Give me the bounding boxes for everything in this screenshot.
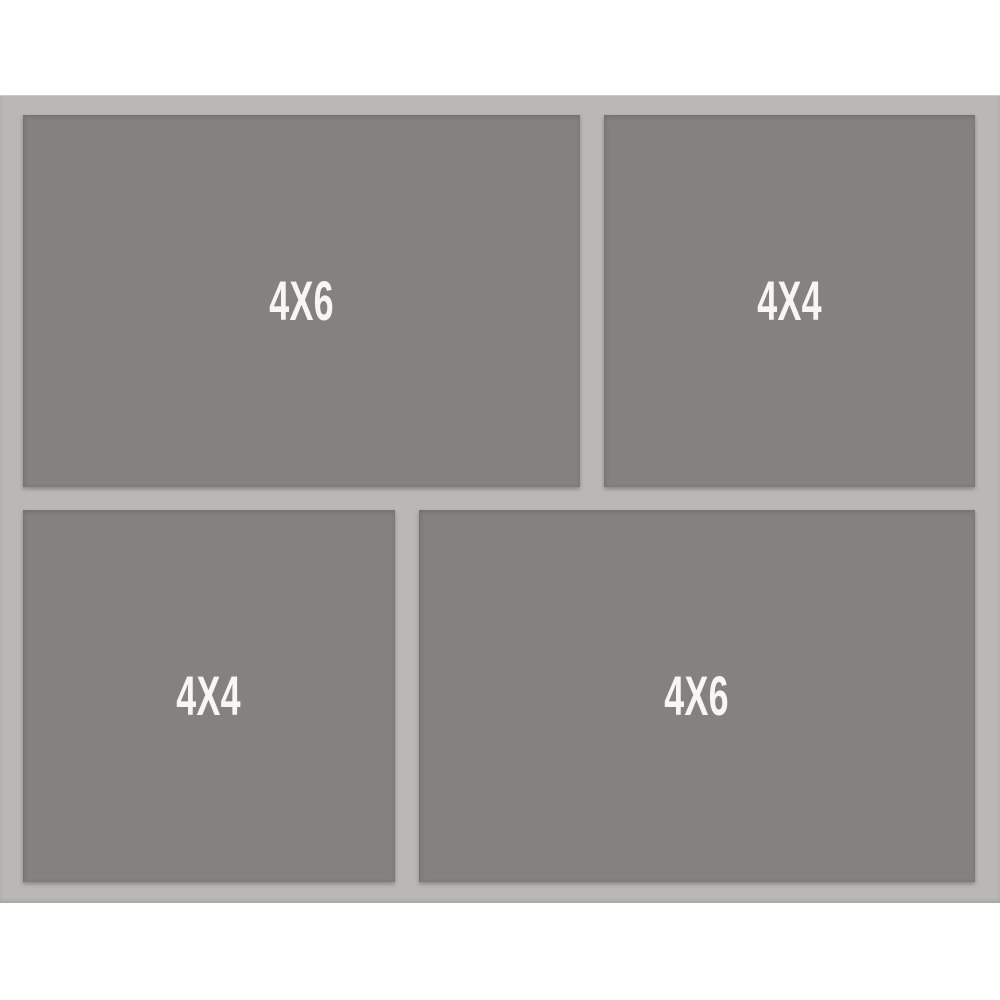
- collage-mat: 4X6 4X4 4X4 4X6: [0, 95, 1000, 903]
- opening-size-label: 4X6: [665, 668, 730, 724]
- photo-opening-top-right[interactable]: 4X4: [604, 115, 975, 487]
- photo-opening-bottom-right[interactable]: 4X6: [419, 510, 975, 882]
- opening-size-label: 4X4: [757, 273, 822, 329]
- photo-opening-top-left[interactable]: 4X6: [23, 115, 580, 487]
- opening-size-label: 4X6: [269, 273, 334, 329]
- opening-size-label: 4X4: [177, 668, 242, 724]
- collage-canvas: 4X6 4X4 4X4 4X6: [0, 0, 1000, 1000]
- photo-opening-bottom-left[interactable]: 4X4: [23, 510, 395, 882]
